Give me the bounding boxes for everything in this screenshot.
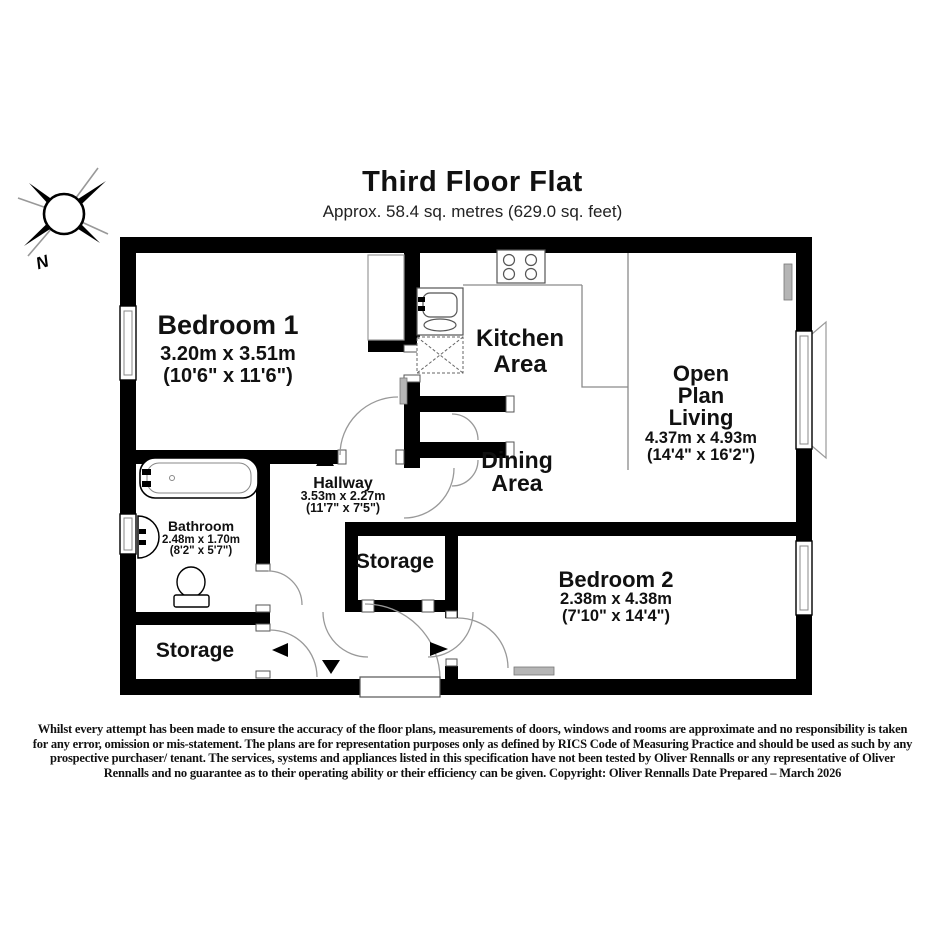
basin (138, 516, 159, 558)
window-bedroom2 (796, 541, 812, 615)
door-arcs (268, 397, 508, 679)
bedroom2-metric: 2.38m x 4.38m (560, 590, 672, 608)
toilet (174, 567, 209, 607)
storage-left-name: Storage (156, 639, 234, 662)
kitchen-name-1: Kitchen (476, 325, 564, 352)
hob (497, 250, 545, 283)
bathtub (140, 458, 258, 498)
bedroom2-name: Bedroom 2 (559, 567, 674, 592)
dining-name-2: Area (491, 470, 542, 496)
washing-machine (417, 337, 463, 373)
door-arc-bedroom1 (340, 397, 398, 455)
disclaimer-line: Whilst every attempt has been made to en… (7, 722, 938, 737)
floor-plan-svg: N (0, 0, 945, 945)
disclaimer-line: Rennalls and no guarantee as to their op… (7, 766, 938, 781)
living-metric: 4.37m x 4.93m (645, 429, 757, 447)
kitchen-name-2: Area (493, 351, 547, 378)
living-name-3: Living (669, 405, 734, 430)
door-arc-entrance (365, 604, 440, 679)
door-arc-storage-center-left (323, 612, 368, 657)
compass-rose-icon: N (18, 168, 108, 273)
living-imperial: (14'4" x 16'2") (647, 446, 755, 464)
arrow-down-icon (322, 660, 340, 674)
arrow-left-icon (272, 643, 288, 657)
disclaimer-line: for any error, omission or mis-statement… (7, 737, 938, 752)
window-bathroom (120, 514, 136, 554)
bathroom-imperial: (8'2" x 5'7") (170, 545, 233, 557)
door-arc-vestibule-b (452, 460, 478, 486)
radiator-bedroom2 (514, 667, 554, 675)
hallway-imperial: (11'7" x 7'5") (306, 501, 380, 515)
door-arc-bedroom2 (458, 618, 508, 668)
window-living (796, 322, 826, 458)
window-bedroom1 (120, 306, 136, 380)
kitchen-door-leaf (400, 378, 407, 404)
entrance-door (360, 677, 440, 697)
bedroom2-imperial: (7'10" x 14'4") (562, 607, 670, 625)
bedroom1-name: Bedroom 1 (157, 310, 298, 340)
bedroom1-metric: 3.20m x 3.51m (160, 343, 296, 365)
radiator-living (784, 264, 792, 300)
disclaimer: Whilst every attempt has been made to en… (7, 722, 938, 780)
door-arc-dining (404, 468, 454, 518)
storage-center-name: Storage (356, 550, 434, 573)
disclaimer-line: prospective purchaser/ tenant. The servi… (7, 751, 938, 766)
bathroom-name: Bathroom (168, 518, 234, 534)
kitchen-sink (417, 288, 463, 335)
compass-north-label: N (34, 251, 52, 273)
door-posts (256, 345, 514, 678)
door-arc-bathroom (268, 571, 302, 605)
bedroom1-imperial: (10'6" x 11'6") (163, 365, 293, 387)
alcove-recess (368, 255, 404, 340)
door-arc-vestibule-a (452, 414, 478, 440)
door-arc-storage-left (270, 630, 317, 677)
